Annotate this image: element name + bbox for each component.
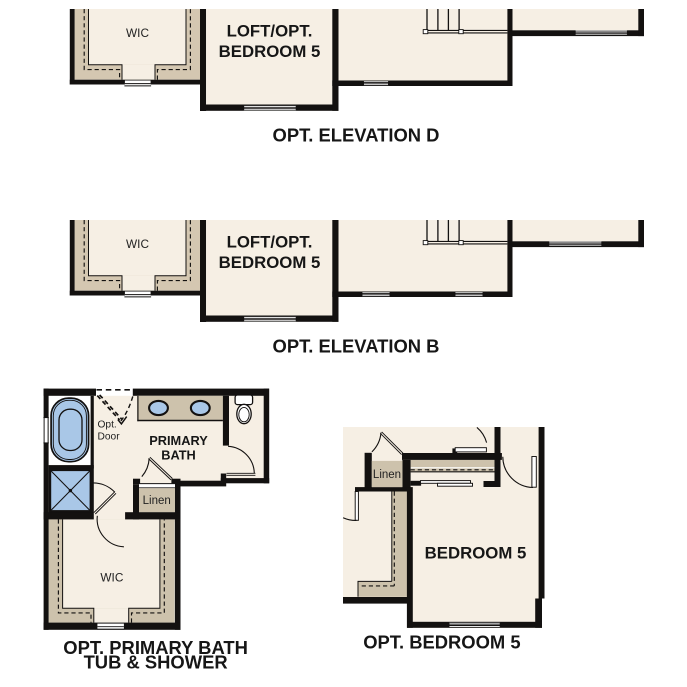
svg-text:BEDROOM 5: BEDROOM 5: [219, 42, 321, 61]
svg-text:WIC: WIC: [126, 237, 149, 251]
svg-text:LOFT/OPT.: LOFT/OPT.: [227, 21, 313, 40]
svg-text:OPT. ELEVATION D: OPT. ELEVATION D: [273, 125, 440, 146]
svg-text:BEDROOM 5: BEDROOM 5: [219, 253, 321, 272]
svg-text:BEDROOM 5: BEDROOM 5: [425, 544, 527, 563]
svg-text:TUB & SHOWER: TUB & SHOWER: [84, 651, 228, 672]
svg-text:OPT. BEDROOM 5: OPT. BEDROOM 5: [363, 631, 520, 652]
svg-text:WIC: WIC: [100, 571, 123, 585]
svg-text:Linen: Linen: [373, 469, 401, 481]
svg-text:BATH: BATH: [161, 447, 196, 462]
svg-text:LOFT/OPT.: LOFT/OPT.: [227, 232, 313, 251]
svg-text:Linen: Linen: [143, 495, 171, 507]
svg-text:OPT. ELEVATION B: OPT. ELEVATION B: [273, 336, 440, 357]
svg-text:PRIMARY: PRIMARY: [149, 433, 208, 448]
svg-text:WIC: WIC: [126, 26, 149, 40]
svg-text:Door: Door: [98, 432, 121, 443]
svg-text:Opt.: Opt.: [98, 420, 117, 431]
